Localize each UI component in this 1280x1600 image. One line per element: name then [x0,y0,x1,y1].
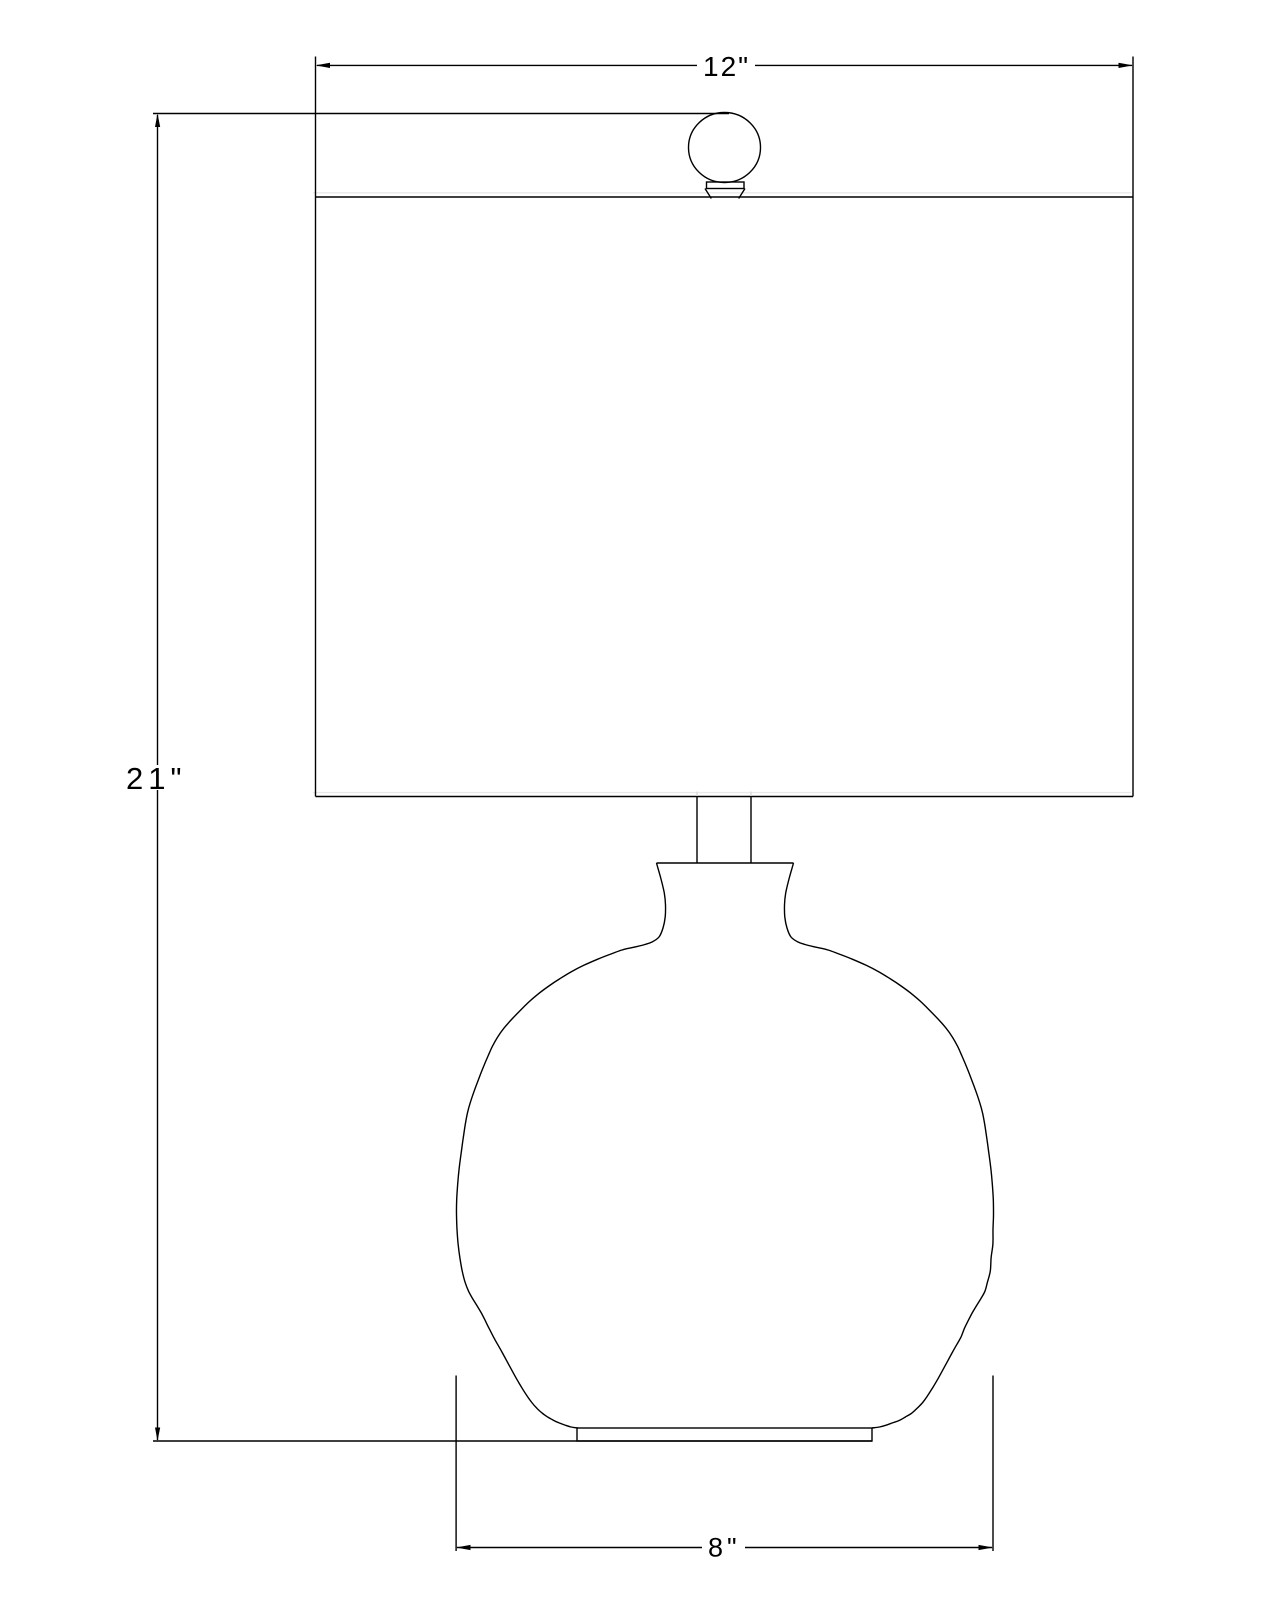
svg-text:21": 21" [126,761,187,796]
svg-text:12": 12" [703,51,750,82]
svg-text:8": 8" [708,1533,741,1563]
